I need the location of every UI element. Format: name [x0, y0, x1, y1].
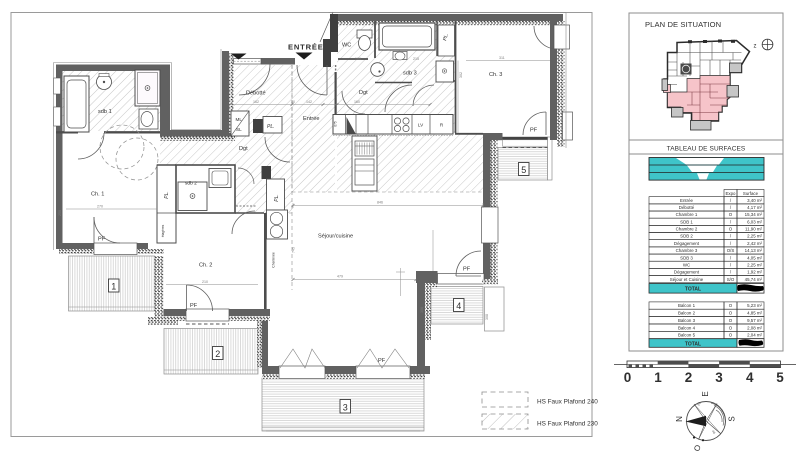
svg-text:3: 3 — [343, 403, 348, 413]
svg-text:2,42 m²: 2,42 m² — [747, 241, 762, 246]
svg-text:Séjour et Cuisine: Séjour et Cuisine — [670, 277, 704, 282]
svg-text:2,08 m²: 2,08 m² — [747, 325, 762, 330]
svg-text:S/O: S/O — [727, 277, 735, 282]
svg-text:Balcon 4: Balcon 4 — [678, 325, 696, 330]
svg-text:Dégagement: Dégagement — [674, 270, 700, 275]
svg-text:O: O — [729, 333, 733, 338]
svg-text:2: 2 — [215, 349, 220, 359]
svg-text:Séjour/cuisine: Séjour/cuisine — [318, 234, 353, 240]
svg-text:Débotté: Débotté — [246, 91, 266, 97]
svg-text:S: S — [728, 416, 737, 421]
svg-text:40: 40 — [711, 430, 716, 435]
svg-text:2: 2 — [685, 370, 693, 385]
svg-text:160: 160 — [354, 100, 360, 104]
svg-text:Chambre 3: Chambre 3 — [676, 248, 698, 253]
svg-text:30: 30 — [291, 100, 295, 104]
svg-text:PF: PF — [98, 237, 106, 243]
svg-text:4,17 m²: 4,17 m² — [747, 205, 762, 210]
svg-text:sdb 2: sdb 2 — [185, 181, 197, 187]
svg-text:N: N — [675, 416, 684, 422]
svg-text:ML: ML — [236, 117, 243, 122]
svg-text:SDB 2: SDB 2 — [680, 234, 693, 239]
svg-text:Chambre 2: Chambre 2 — [676, 227, 698, 232]
svg-text:PF: PF — [378, 358, 386, 364]
svg-text:Ch. 3: Ch. 3 — [489, 72, 502, 78]
svg-text:9,57 m²: 9,57 m² — [747, 318, 762, 323]
svg-text:Débotté: Débotté — [679, 205, 695, 210]
svg-text:Cheminée: Cheminée — [272, 252, 276, 268]
svg-text:PL.: PL. — [274, 194, 280, 202]
svg-text:E: E — [701, 391, 710, 396]
svg-text:Balcon 5: Balcon 5 — [678, 333, 696, 338]
svg-text:180: 180 — [355, 57, 361, 61]
svg-text:5,23 m²: 5,23 m² — [747, 303, 762, 308]
svg-text:162: 162 — [253, 100, 259, 104]
svg-text:0: 0 — [624, 370, 632, 385]
svg-text:WC: WC — [683, 262, 690, 267]
svg-text:846: 846 — [377, 201, 383, 205]
svg-text:2,04 m²: 2,04 m² — [747, 333, 762, 338]
svg-text:Balcon 2: Balcon 2 — [678, 311, 696, 316]
svg-text:6,03 m²: 6,03 m² — [747, 219, 762, 224]
svg-text:5: 5 — [521, 165, 526, 175]
svg-text:250: 250 — [58, 210, 62, 216]
svg-text:142: 142 — [306, 100, 312, 104]
svg-text:Entrée: Entrée — [680, 198, 693, 203]
svg-text:745: 745 — [292, 247, 296, 253]
svg-text:Dgt: Dgt — [359, 90, 368, 96]
svg-text:1: 1 — [654, 370, 662, 385]
svg-text:Expo: Expo — [725, 191, 736, 196]
svg-text:5: 5 — [776, 370, 784, 385]
svg-text:14,13 m²: 14,13 m² — [745, 248, 763, 253]
svg-text:306: 306 — [420, 307, 424, 313]
svg-text:O: O — [729, 311, 733, 316]
svg-text:Surface: Surface — [743, 191, 759, 196]
svg-text:1: 1 — [111, 282, 116, 292]
svg-text:075: 075 — [334, 121, 338, 127]
svg-text:210: 210 — [202, 280, 208, 284]
svg-text:ENTRÉE: ENTRÉE — [288, 43, 324, 52]
svg-text:PF: PF — [190, 303, 198, 309]
svg-text:311: 311 — [499, 56, 505, 60]
svg-text:Entrée: Entrée — [303, 116, 319, 122]
svg-text:Chambre 1: Chambre 1 — [676, 212, 698, 217]
svg-text:270: 270 — [97, 205, 103, 209]
svg-text:O: O — [729, 227, 733, 232]
svg-text:3: 3 — [715, 370, 723, 385]
svg-text:Ch. 1: Ch. 1 — [91, 192, 104, 198]
svg-text:Balcon 1: Balcon 1 — [678, 303, 696, 308]
svg-text:Dgt: Dgt — [239, 146, 248, 152]
svg-text:TOTAL: TOTAL — [685, 341, 701, 347]
svg-text:4: 4 — [746, 370, 754, 385]
svg-text:sdb 3: sdb 3 — [403, 71, 417, 77]
svg-text:Dégagement: Dégagement — [674, 241, 700, 246]
svg-text:11,90 m²: 11,90 m² — [745, 227, 763, 232]
svg-text:PF: PF — [463, 267, 471, 273]
svg-text:HS Faux Plafond 240: HS Faux Plafond 240 — [537, 399, 598, 406]
svg-text:4,05 m²: 4,05 m² — [747, 255, 762, 260]
svg-text:O/S: O/S — [727, 248, 735, 253]
svg-text:SDB 3: SDB 3 — [680, 255, 693, 260]
svg-text:étagères: étagères — [161, 224, 165, 237]
svg-text:z: z — [754, 44, 757, 50]
svg-text:45,74 m²: 45,74 m² — [745, 277, 763, 282]
svg-text:O: O — [692, 444, 702, 452]
svg-text:sdb 1: sdb 1 — [98, 109, 112, 115]
svg-text:HS Faux Plafond 230: HS Faux Plafond 230 — [537, 421, 598, 428]
svg-text:O: O — [729, 212, 733, 217]
svg-text:215: 215 — [413, 57, 419, 61]
svg-text:1,92 m²: 1,92 m² — [747, 270, 762, 275]
svg-text:TABLEAU DE SURFACES: TABLEAU DE SURFACES — [667, 146, 746, 153]
svg-text:PLAN DE SITUATION: PLAN DE SITUATION — [645, 20, 721, 29]
svg-text:O: O — [729, 325, 733, 330]
svg-text:Ch. 2: Ch. 2 — [199, 263, 212, 269]
svg-text:302: 302 — [459, 72, 463, 78]
svg-text:PL.: PL. — [164, 191, 170, 199]
svg-text:O: O — [729, 318, 733, 323]
svg-text:3,40 m²: 3,40 m² — [747, 198, 762, 203]
svg-text:479: 479 — [337, 275, 343, 279]
svg-text:4,85 m²: 4,85 m² — [747, 311, 762, 316]
svg-text:O: O — [729, 303, 733, 308]
svg-text:308: 308 — [485, 314, 489, 320]
svg-text:SDB 1: SDB 1 — [680, 219, 693, 224]
svg-text:Balcon 3: Balcon 3 — [678, 318, 696, 323]
svg-text:SL: SL — [236, 127, 242, 132]
svg-text:2,25 m²: 2,25 m² — [747, 262, 762, 267]
svg-text:PF: PF — [530, 128, 538, 134]
svg-text:TOTAL: TOTAL — [685, 287, 701, 293]
svg-text:15,34 m²: 15,34 m² — [745, 212, 763, 217]
svg-text:PL.: PL. — [267, 124, 275, 130]
svg-text:2,25 m²: 2,25 m² — [747, 234, 762, 239]
svg-text:4: 4 — [456, 301, 461, 311]
svg-text:WC: WC — [342, 43, 351, 49]
